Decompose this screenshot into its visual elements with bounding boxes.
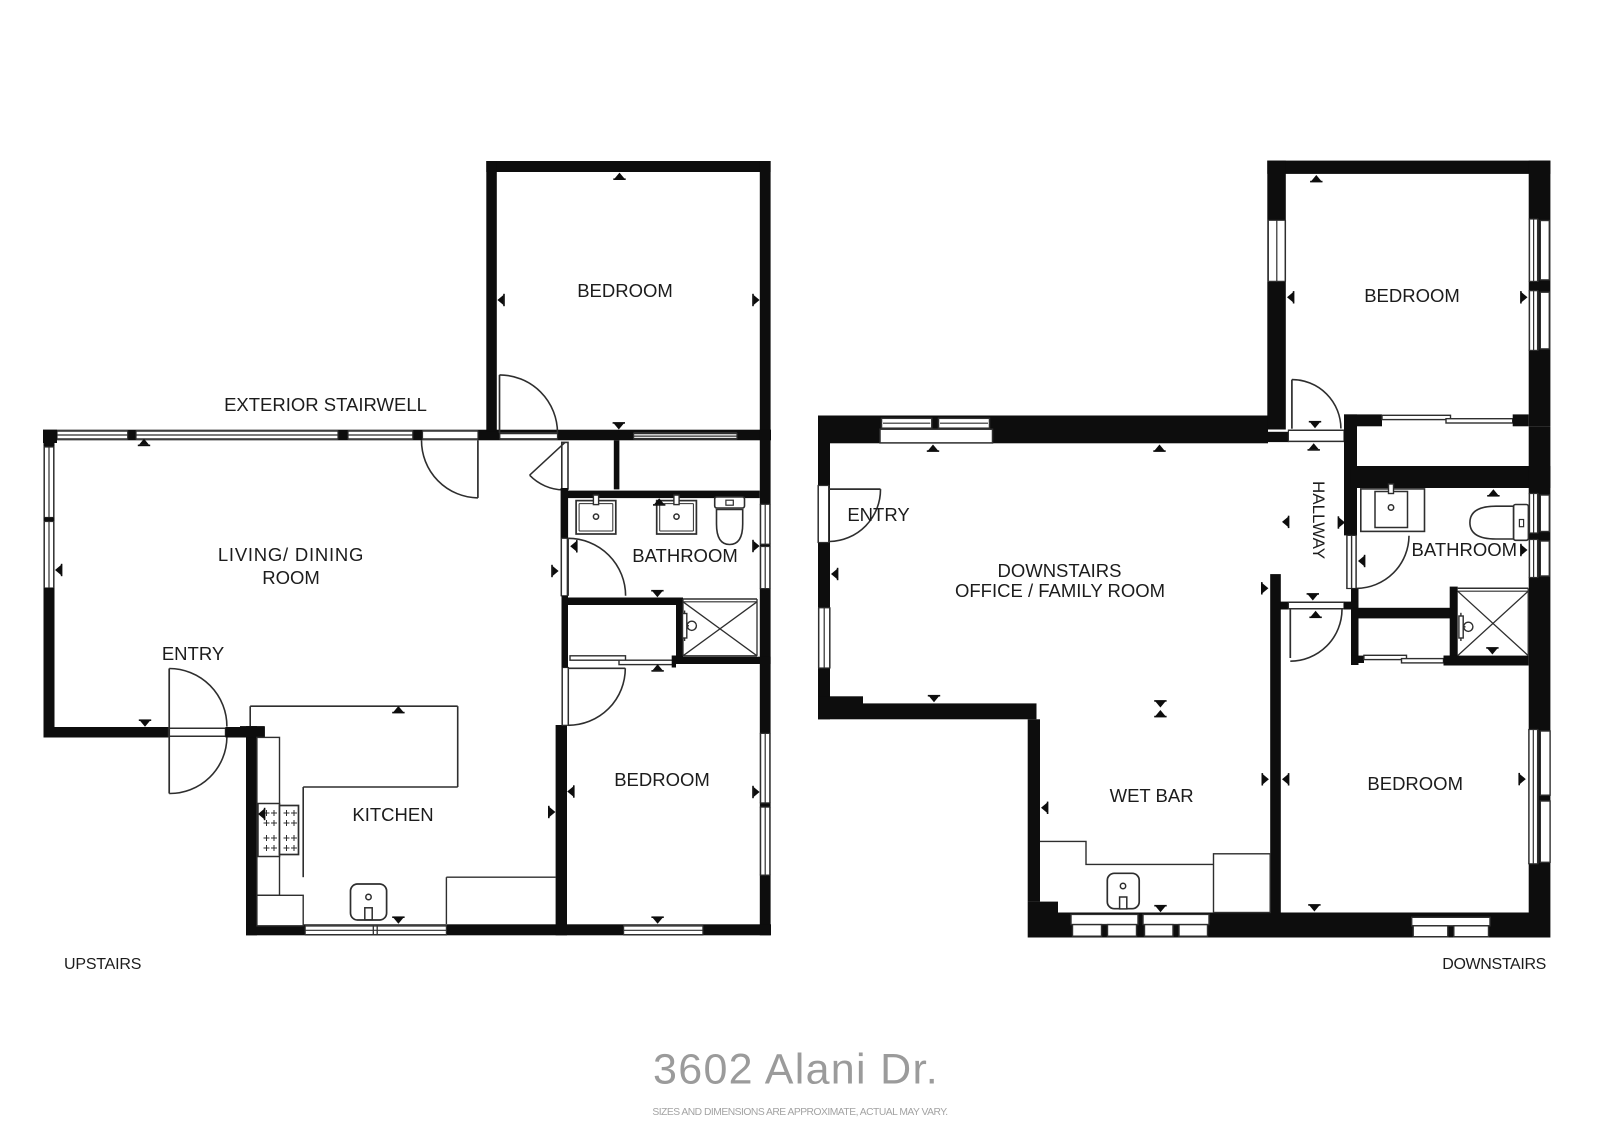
svg-text:BEDROOM: BEDROOM	[1367, 773, 1463, 794]
svg-text:ENTRY: ENTRY	[162, 643, 224, 664]
svg-text:ROOM: ROOM	[262, 567, 320, 588]
svg-text:EXTERIOR STAIRWELL: EXTERIOR STAIRWELL	[224, 394, 427, 415]
svg-text:SIZES AND DIMENSIONS ARE APPRO: SIZES AND DIMENSIONS ARE APPROXIMATE, AC…	[652, 1107, 947, 1118]
svg-text:UPSTAIRS: UPSTAIRS	[64, 956, 141, 973]
svg-text:BATHROOM: BATHROOM	[1412, 539, 1518, 560]
svg-text:KITCHEN: KITCHEN	[352, 804, 433, 825]
svg-text:3602 Alani Dr.: 3602 Alani Dr.	[653, 1046, 939, 1094]
svg-text:BEDROOM: BEDROOM	[614, 769, 710, 790]
svg-text:DOWNSTAIRS: DOWNSTAIRS	[1442, 956, 1546, 973]
svg-text:WET BAR: WET BAR	[1110, 785, 1194, 806]
svg-text:ENTRY: ENTRY	[847, 504, 909, 525]
svg-text:BEDROOM: BEDROOM	[577, 280, 673, 301]
svg-text:LIVING/ DINING: LIVING/ DINING	[218, 544, 364, 565]
svg-text:BEDROOM: BEDROOM	[1364, 285, 1460, 306]
svg-text:BATHROOM: BATHROOM	[632, 545, 738, 566]
svg-text:HALLWAY: HALLWAY	[1309, 481, 1328, 559]
svg-text:OFFICE / FAMILY ROOM: OFFICE / FAMILY ROOM	[955, 580, 1165, 601]
svg-text:DOWNSTAIRS: DOWNSTAIRS	[997, 560, 1121, 581]
